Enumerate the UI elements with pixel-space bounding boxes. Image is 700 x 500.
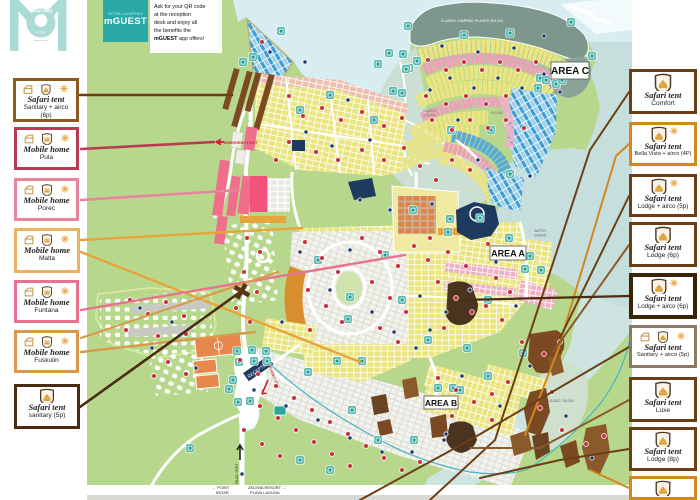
svg-text:IRGAR: IRGAR <box>216 490 229 495</box>
svg-text:EMERGENCY EXIT: EMERGENCY EXIT <box>224 141 259 145</box>
svg-text:CAMP MAP: CAMP MAP <box>29 9 52 14</box>
svg-text:AREA C: AREA C <box>551 66 589 77</box>
svg-text:IZLAZ / EXIT: IZLAZ / EXIT <box>235 463 239 484</box>
svg-text:AREA A: AREA A <box>491 249 525 259</box>
svg-text:940-580: 940-580 <box>491 111 503 115</box>
svg-text:ISTRA: ISTRA <box>37 31 46 35</box>
svg-text:WATER: WATER <box>534 229 546 233</box>
svg-text:AREA B: AREA B <box>425 398 457 408</box>
svg-text:CLASSIC CAMPING PLACES 303-422: CLASSIC CAMPING PLACES 303-422 <box>441 19 504 23</box>
svg-text:CLASSIC: CLASSIC <box>423 109 437 113</box>
svg-text:626-564: 626-564 <box>424 114 436 118</box>
svg-text:PLAVA LAGUNA: PLAVA LAGUNA <box>250 490 280 495</box>
svg-text:GAMES: GAMES <box>534 234 547 238</box>
svg-text:CLASSIC 716-302: CLASSIC 716-302 <box>546 399 574 403</box>
